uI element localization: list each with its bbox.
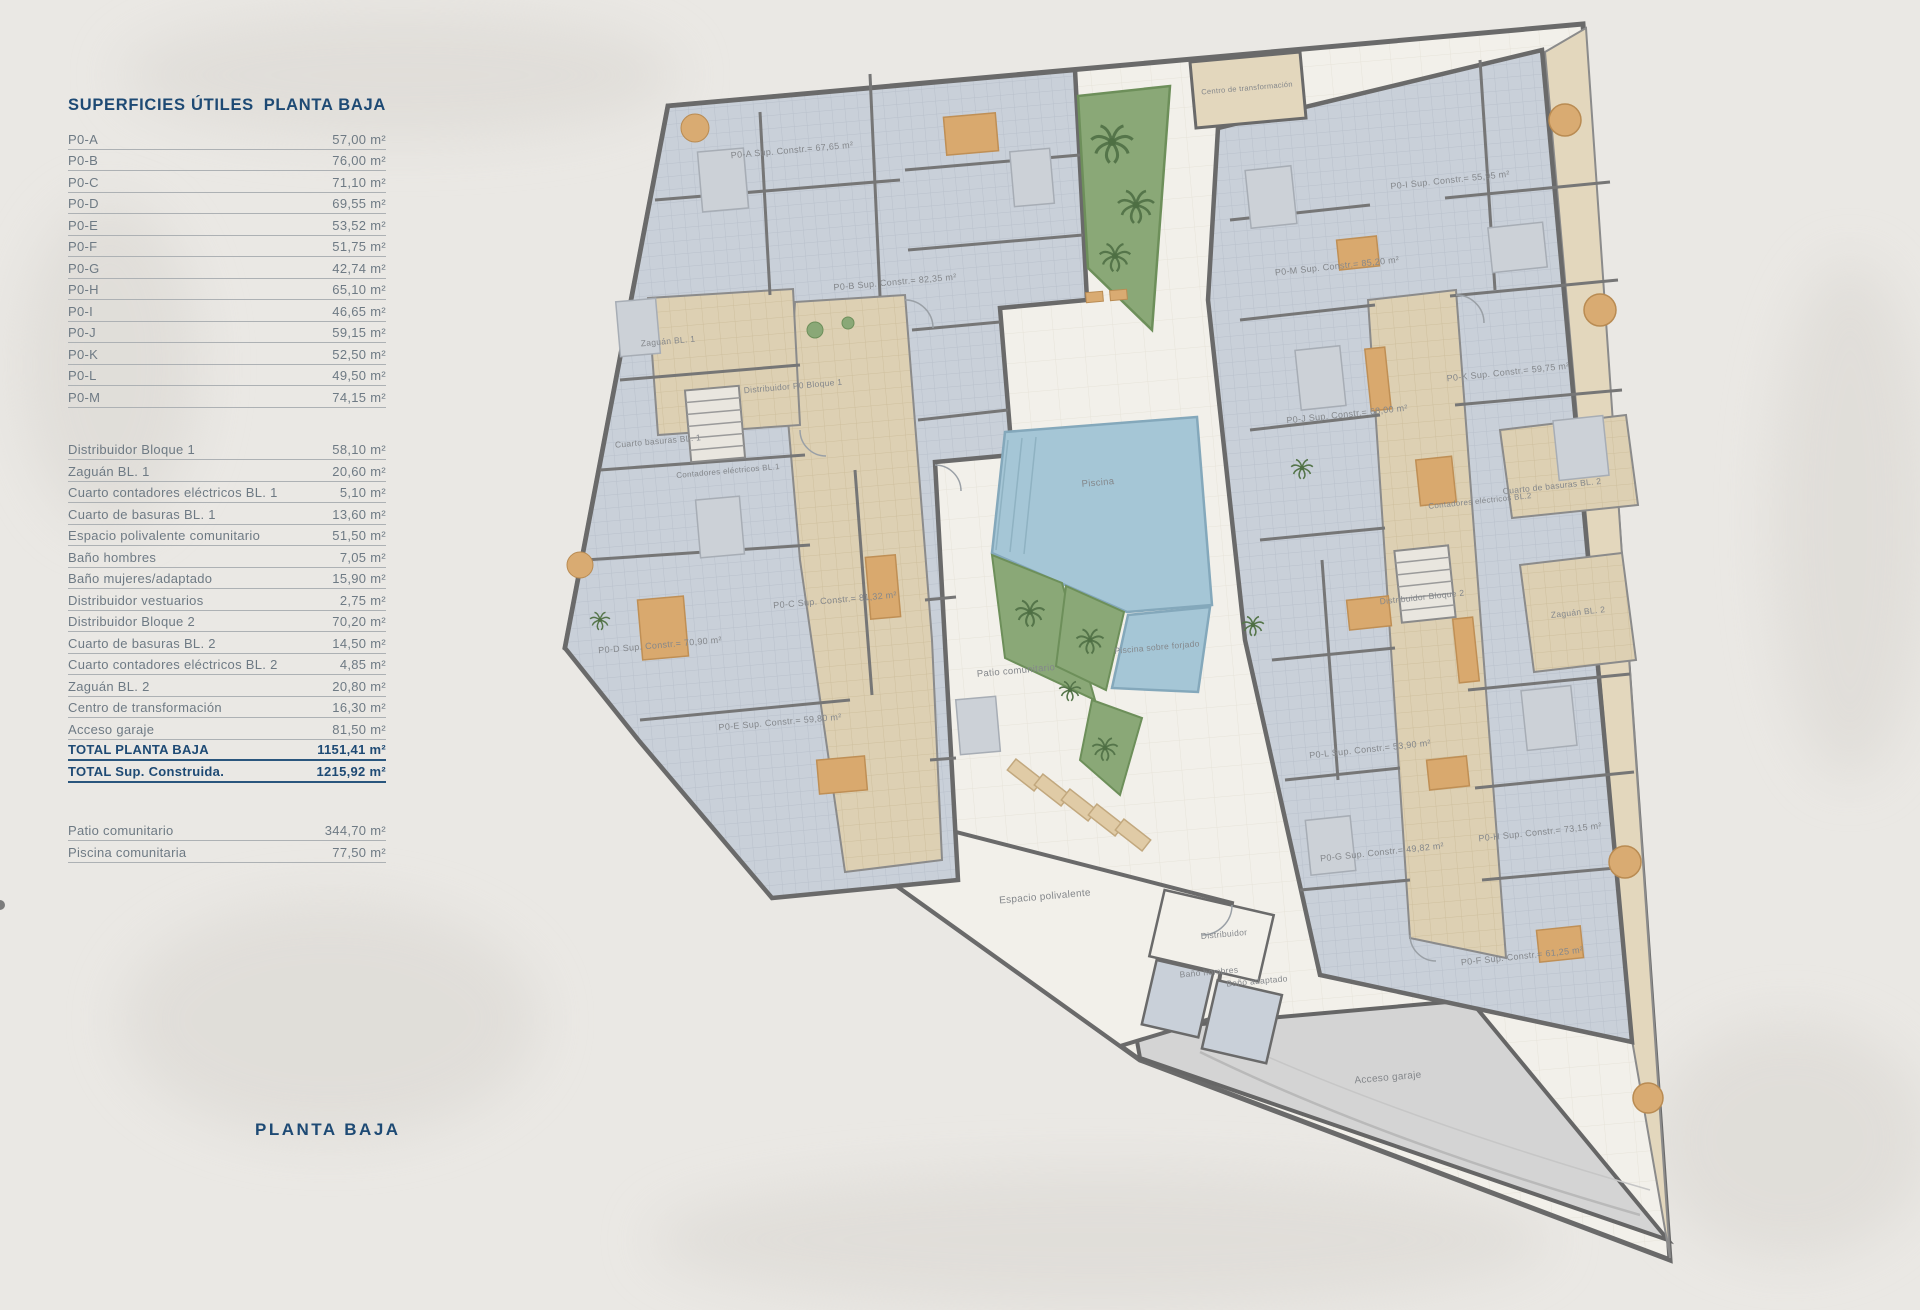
row-label: Cuarto de basuras BL. 2 [68,636,216,651]
row-value: 71,10 m² [332,175,386,190]
table-row: Baño mujeres/adaptado15,90 m² [68,568,386,590]
table-row: P0-C71,10 m² [68,171,386,193]
common-table: Distribuidor Bloque 158,10 m²Zaguán BL. … [68,439,386,740]
raised-pool [1112,607,1210,692]
table-row: Baño hombres7,05 m² [68,546,386,568]
row-label: P0-J [68,325,96,340]
row-label: Cuarto contadores eléctricos BL. 2 [68,657,278,672]
row-value: 69,55 m² [332,196,386,211]
table-row: P0-I46,65 m² [68,300,386,322]
row-value: 13,60 m² [332,507,386,522]
row-label: Cuarto contadores eléctricos BL. 1 [68,485,278,500]
row-label: P0-M [68,390,100,405]
table-row: TOTAL Sup. Construida.1215,92 m² [68,761,386,783]
table-row: P0-D69,55 m² [68,193,386,215]
row-label: P0-D [68,196,99,211]
row-value: 77,50 m² [332,845,386,860]
row-value: 46,65 m² [332,304,386,319]
row-label: P0-F [68,239,97,254]
row-value: 14,50 m² [332,636,386,651]
row-label: P0-E [68,218,98,233]
row-value: 5,10 m² [340,485,386,500]
row-label: Distribuidor Bloque 2 [68,614,195,629]
row-value: 20,80 m² [332,679,386,694]
row-label: TOTAL Sup. Construida. [68,764,224,779]
row-value: 7,05 m² [340,550,386,565]
row-label: Baño mujeres/adaptado [68,571,212,586]
row-label: P0-H [68,282,99,297]
row-value: 4,85 m² [340,657,386,672]
table-row: Cuarto de basuras BL. 113,60 m² [68,503,386,525]
table-row: Zaguán BL. 120,60 m² [68,460,386,482]
row-label: P0-B [68,153,98,168]
row-label: P0-A [68,132,98,147]
row-value: 42,74 m² [332,261,386,276]
table-row: P0-L49,50 m² [68,365,386,387]
row-value: 344,70 m² [325,823,386,838]
row-label: TOTAL PLANTA BAJA [68,742,209,757]
row-label: Piscina comunitaria [68,845,186,860]
table-row: Distribuidor Bloque 270,20 m² [68,611,386,633]
row-value: 1215,92 m² [317,764,387,779]
table-row: Centro de transformación16,30 m² [68,697,386,719]
row-label: Centro de transformación [68,700,222,715]
table-row: P0-E53,52 m² [68,214,386,236]
panel-subtitle: PLANTA BAJA [264,96,386,115]
table-row: Cuarto contadores eléctricos BL. 15,10 m… [68,482,386,504]
row-value: 70,20 m² [332,614,386,629]
panel-header: SUPERFICIES ÚTILES PLANTA BAJA [68,96,386,115]
table-row: P0-J59,15 m² [68,322,386,344]
table-row: TOTAL PLANTA BAJA1151,41 m² [68,740,386,762]
row-label: Patio comunitario [68,823,174,838]
row-label: Cuarto de basuras BL. 1 [68,507,216,522]
outdoor-table: Patio comunitario344,70 m²Piscina comuni… [68,820,386,863]
row-value: 51,50 m² [332,528,386,543]
row-label: Espacio polivalente comunitario [68,528,260,543]
row-label: P0-I [68,304,93,319]
row-value: 58,10 m² [332,442,386,457]
table-row: Distribuidor Bloque 158,10 m² [68,439,386,461]
row-value: 49,50 m² [332,368,386,383]
table-row: Zaguán BL. 220,80 m² [68,675,386,697]
units-table: P0-A57,00 m²P0-B76,00 m²P0-C71,10 m²P0-D… [68,128,386,408]
row-value: 57,00 m² [332,132,386,147]
table-row: Cuarto de basuras BL. 214,50 m² [68,632,386,654]
row-value: 1151,41 m² [317,742,386,757]
row-label: Acceso garaje [68,722,154,737]
table-row: Distribuidor vestuarios2,75 m² [68,589,386,611]
row-value: 16,30 m² [332,700,386,715]
row-value: 74,15 m² [332,390,386,405]
areas-panel: SUPERFICIES ÚTILES PLANTA BAJA P0-A57,00… [68,96,386,863]
table-row: P0-B76,00 m² [68,150,386,172]
row-label: Distribuidor Bloque 1 [68,442,195,457]
totals-table: TOTAL PLANTA BAJA1151,41 m²TOTAL Sup. Co… [68,740,386,783]
panel-title: SUPERFICIES ÚTILES [68,96,254,115]
row-value: 65,10 m² [332,282,386,297]
table-row: P0-A57,00 m² [68,128,386,150]
table-row: P0-M74,15 m² [68,386,386,408]
row-label: Zaguán BL. 2 [68,679,150,694]
row-label: Baño hombres [68,550,156,565]
table-row: Patio comunitario344,70 m² [68,820,386,842]
table-row: Piscina comunitaria77,50 m² [68,841,386,863]
table-row: P0-K52,50 m² [68,343,386,365]
row-label: Distribuidor vestuarios [68,593,204,608]
row-value: 52,50 m² [332,347,386,362]
table-row: P0-G42,74 m² [68,257,386,279]
row-value: 53,52 m² [332,218,386,233]
row-value: 76,00 m² [332,153,386,168]
table-row: P0-F51,75 m² [68,236,386,258]
row-value: 20,60 m² [332,464,386,479]
row-value: 15,90 m² [332,571,386,586]
row-label: P0-G [68,261,100,276]
sheet-title: PLANTA BAJA [255,1120,401,1140]
row-value: 51,75 m² [332,239,386,254]
row-label: Zaguán BL. 1 [68,464,150,479]
table-row: Cuarto contadores eléctricos BL. 24,85 m… [68,654,386,676]
row-value: 81,50 m² [332,722,386,737]
row-label: P0-L [68,368,97,383]
table-row: Acceso garaje81,50 m² [68,718,386,740]
table-row: P0-H65,10 m² [68,279,386,301]
row-label: P0-K [68,347,98,362]
table-row: Espacio polivalente comunitario51,50 m² [68,525,386,547]
row-value: 2,75 m² [340,593,386,608]
row-value: 59,15 m² [332,325,386,340]
row-label: P0-C [68,175,99,190]
